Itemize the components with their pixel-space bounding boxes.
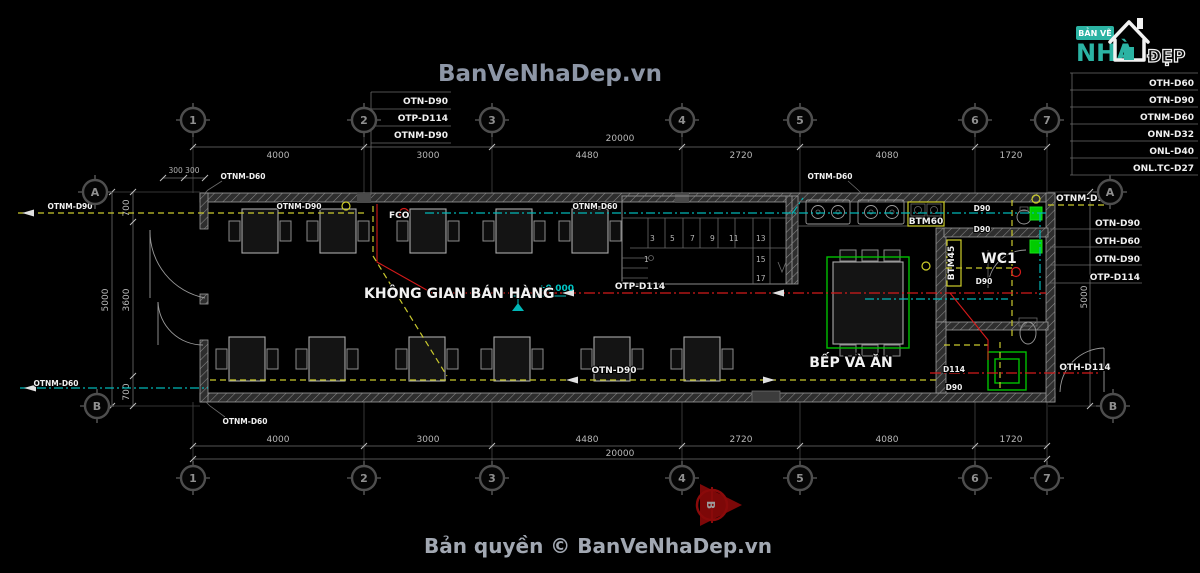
- dim-bot-5: 4080: [876, 435, 899, 445]
- label-stack-top-2: OTP-D114: [398, 114, 448, 124]
- label-d90-2: D90: [974, 225, 991, 234]
- grid-col-3-bottom: 3: [488, 472, 496, 485]
- grid-col-2-bottom: 2: [360, 472, 368, 485]
- site-title: BanVeNhaDep.vn: [438, 61, 662, 87]
- dim-bot-4: 2720: [730, 435, 753, 445]
- stair-num-7: 7: [690, 234, 695, 243]
- label-d90-3: D90: [976, 277, 993, 286]
- dim-left-3600: 3600: [122, 288, 132, 311]
- legend-row-5: ONL-D40: [1149, 147, 1194, 157]
- grid-col-3-top: 3: [488, 114, 496, 127]
- legend-row-6: ONL.TC-D27: [1133, 164, 1194, 174]
- dimensions-right: 5000: [1080, 189, 1093, 409]
- dim-bot-total: 20000: [606, 449, 635, 459]
- dimensions-bottom: 4000 3000 4480 2720 4080 1720 20000: [190, 435, 1050, 462]
- stair-num-17: 17: [756, 274, 766, 283]
- kitchen-fixtures: BTM60: [798, 200, 944, 356]
- label-btm60: BTM60: [909, 217, 943, 227]
- staircase: 1 3 5 7 9 11 13 15 17: [622, 196, 792, 284]
- label-mid-top: OTNM-D60: [572, 202, 617, 211]
- label-left-a: OTNM-D90: [47, 202, 92, 211]
- dim-left-700-bottom: 700: [122, 383, 132, 400]
- grid-col-2-top: 2: [360, 114, 368, 127]
- label-left-b: OTNM-D60: [33, 379, 78, 388]
- section-letter: B: [704, 501, 717, 509]
- legend-row-4: ONN-D32: [1148, 130, 1194, 140]
- grid-row-a-left: A: [91, 186, 100, 199]
- section-marker: B: [697, 484, 742, 526]
- grid-col-5-top: 5: [796, 114, 804, 127]
- grid-col-1-top: 1: [189, 114, 197, 127]
- logo-line3: ĐẸP: [1147, 47, 1185, 67]
- grid-col-6-bottom: 6: [971, 472, 979, 485]
- label-tl-wall: OTNM-D60: [220, 172, 265, 181]
- leader-stack-right: OTN-D90 OTH-D60 OTN-D90 OTP-D114: [1050, 219, 1142, 283]
- label-d90-4: D90: [946, 383, 963, 392]
- dim-300-300: 300 300: [168, 166, 199, 175]
- label-btm45: BTM45: [947, 246, 957, 280]
- brand-logo: BẢN VẼ NHÀ ĐẸP: [1076, 18, 1185, 67]
- stair-num-3: 3: [650, 234, 655, 243]
- legend-row-1: OTH-D60: [1149, 79, 1194, 89]
- stair-num-1: 1: [644, 255, 649, 264]
- dim-left-5000: 5000: [101, 288, 111, 311]
- dim-bot-1: 4000: [267, 435, 290, 445]
- dim-bot-6: 1720: [1000, 435, 1023, 445]
- dimensions-left: 700 3600 5000 700: [101, 189, 136, 409]
- dim-top-1: 4000: [267, 151, 290, 161]
- dim-top-2: 3000: [417, 151, 440, 161]
- grid-col-1-bottom: 1: [189, 472, 197, 485]
- label-fco: FCO: [389, 211, 410, 221]
- copyright-text: Bản quyền © BanVeNhaDep.vn: [424, 534, 772, 558]
- dim-top-6: 1720: [1000, 151, 1023, 161]
- dim-top-5: 4080: [876, 151, 899, 161]
- dim-bot-2: 3000: [417, 435, 440, 445]
- legend-table: OTH-D60 OTN-D90 OTNM-D60 ONN-D32 ONL-D40…: [1070, 73, 1198, 175]
- room-kitchen: BẾP VÀ ĂN: [809, 352, 893, 371]
- stair-num-11: 11: [729, 234, 739, 243]
- floorplan-drawing: 20000 4000 3000 4480 2720 4080 1720 300 …: [0, 0, 1200, 573]
- label-tr-wall: OTNM-D60: [807, 172, 852, 181]
- label-stack-top-1: OTN-D90: [403, 97, 448, 107]
- label-bottom-mid: OTN-D90: [591, 366, 636, 376]
- dim-left-700-top: 700: [122, 199, 132, 216]
- dimensions-top: 20000 4000 3000 4480 2720 4080 1720 300 …: [160, 134, 1050, 181]
- label-stack-right-4: OTP-D114: [1090, 273, 1140, 283]
- legend-row-3: OTNM-D60: [1140, 113, 1194, 123]
- room-sales: KHÔNG GIAN BÁN HÀNG: [364, 284, 555, 302]
- grid-row-a-right: A: [1106, 186, 1115, 199]
- stair-num-15: 15: [756, 255, 766, 264]
- stair-num-9: 9: [710, 234, 715, 243]
- grid-col-4-top: 4: [678, 114, 686, 127]
- label-bl-wall: OTNM-D60: [222, 417, 267, 426]
- logo-line1: BẢN VẼ: [1078, 27, 1111, 38]
- dim-top-3: 4480: [576, 151, 599, 161]
- label-stack-top-3: OTNM-D90: [394, 131, 448, 141]
- label-oth-d114: OTH-D114: [1059, 363, 1110, 373]
- stair-num-5: 5: [670, 234, 675, 243]
- label-stack-right-3: OTN-D90: [1095, 255, 1140, 265]
- label-d90-1: D90: [974, 204, 991, 213]
- legend-row-2: OTN-D90: [1149, 96, 1194, 106]
- grid-row-b-left: B: [93, 400, 101, 413]
- cad-floorplan-viewer: 20000 4000 3000 4480 2720 4080 1720 300 …: [0, 0, 1200, 573]
- label-d114: D114: [943, 365, 965, 374]
- stair-num-13: 13: [756, 234, 766, 243]
- label-stack-right-2: OTH-D60: [1095, 237, 1140, 247]
- grid-col-5-bottom: 5: [796, 472, 804, 485]
- grid-col-6-top: 6: [971, 114, 979, 127]
- grid-col-7-bottom: 7: [1043, 472, 1051, 485]
- grid-bubbles-bottom: 1 2 3 4 5 6 7: [176, 461, 1064, 495]
- dim-top-4: 2720: [730, 151, 753, 161]
- leader-stack-top-left: OTN-D90 OTP-D114 OTNM-D90: [371, 92, 451, 195]
- grid-col-7-top: 7: [1043, 114, 1051, 127]
- label-center-red: OTP-D114: [615, 282, 665, 292]
- grid-row-b-right: B: [1109, 400, 1117, 413]
- dim-bot-3: 4480: [576, 435, 599, 445]
- room-wc: WC1: [981, 251, 1016, 267]
- label-inner-top: OTNM-D90: [276, 202, 321, 211]
- grid-col-4-bottom: 4: [678, 472, 686, 485]
- label-stack-right-1: OTN-D90: [1095, 219, 1140, 229]
- dim-right-5000: 5000: [1080, 285, 1090, 308]
- grid-bubbles-top: 1 2 3 4 5 6 7: [176, 103, 1064, 137]
- dim-top-total: 20000: [606, 134, 635, 144]
